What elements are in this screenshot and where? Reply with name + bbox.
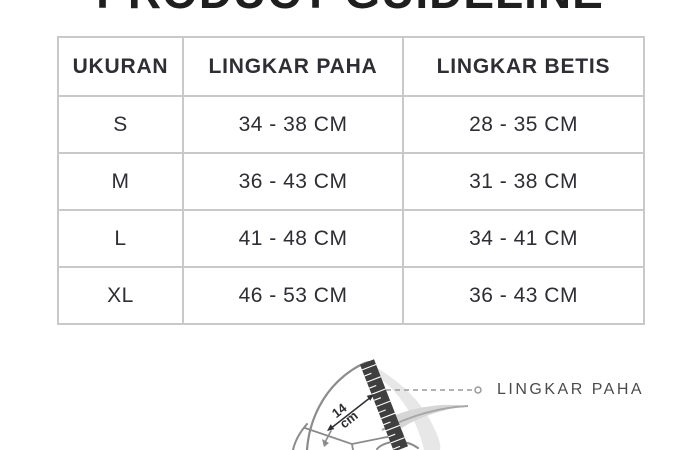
cell-size: L xyxy=(58,210,183,267)
cell-paha: 46 - 53 CM xyxy=(183,267,403,324)
table-row: M 36 - 43 CM 31 - 38 CM xyxy=(58,153,644,210)
length-measure-arrow: 14 cm xyxy=(327,394,374,431)
page-title: PRODUCT GUIDELINE xyxy=(0,0,700,15)
table-header-row: UKURAN LINGKAR PAHA LINGKAR BETIS xyxy=(58,37,644,96)
cell-betis: 31 - 38 CM xyxy=(403,153,644,210)
cell-paha: 34 - 38 CM xyxy=(183,96,403,153)
cell-betis: 34 - 41 CM xyxy=(403,210,644,267)
cell-betis: 28 - 35 CM xyxy=(403,96,644,153)
table-row: S 34 - 38 CM 28 - 35 CM xyxy=(58,96,644,153)
cell-size: M xyxy=(58,153,183,210)
table-row: XL 46 - 53 CM 36 - 43 CM xyxy=(58,267,644,324)
table-row: L 41 - 48 CM 34 - 41 CM xyxy=(58,210,644,267)
cell-paha: 41 - 48 CM xyxy=(183,210,403,267)
header-lingkar-betis: LINGKAR BETIS xyxy=(403,37,644,96)
cell-size: XL xyxy=(58,267,183,324)
cell-size: S xyxy=(58,96,183,153)
cell-paha: 36 - 43 CM xyxy=(183,153,403,210)
leader-endpoint-circle xyxy=(475,387,481,393)
measurement-diagram: 14 cm LINGKAR PAHA xyxy=(280,348,700,450)
header-ukuran: UKURAN xyxy=(58,37,183,96)
header-lingkar-paha: LINGKAR PAHA xyxy=(183,37,403,96)
knee-support-sketch: 14 cm xyxy=(280,348,700,450)
cell-betis: 36 - 43 CM xyxy=(403,267,644,324)
thigh-circumference-label: LINGKAR PAHA xyxy=(497,381,644,399)
size-guide-table: UKURAN LINGKAR PAHA LINGKAR BETIS S 34 -… xyxy=(57,36,645,325)
